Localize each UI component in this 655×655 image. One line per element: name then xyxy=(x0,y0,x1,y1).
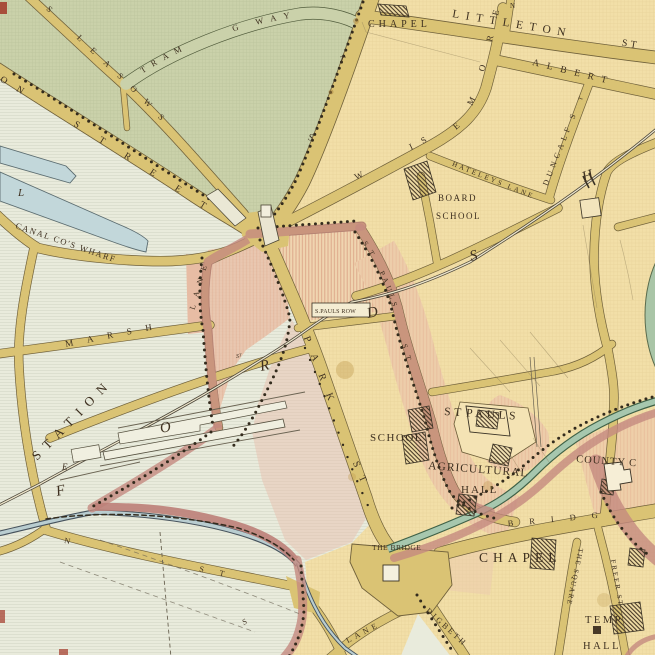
svg-text:E: E xyxy=(61,462,68,472)
svg-text:SCHOOL: SCHOOL xyxy=(370,432,423,444)
svg-text:CHAPEL: CHAPEL xyxy=(368,19,431,30)
svg-text:BOARD: BOARD xyxy=(438,193,477,203)
svg-text:THE BRIDGE: THE BRIDGE xyxy=(372,543,421,552)
svg-text:SCHOOL: SCHOOL xyxy=(436,211,481,221)
svg-text:TEMP: TEMP xyxy=(585,615,623,626)
svg-text:L: L xyxy=(17,187,24,199)
svg-text:HALL: HALL xyxy=(583,641,621,652)
svg-text:S.PAULS ROW: S.PAULS ROW xyxy=(315,309,356,315)
svg-text:CHAPEL: CHAPEL xyxy=(479,550,562,565)
svg-text:N: N xyxy=(510,2,515,10)
